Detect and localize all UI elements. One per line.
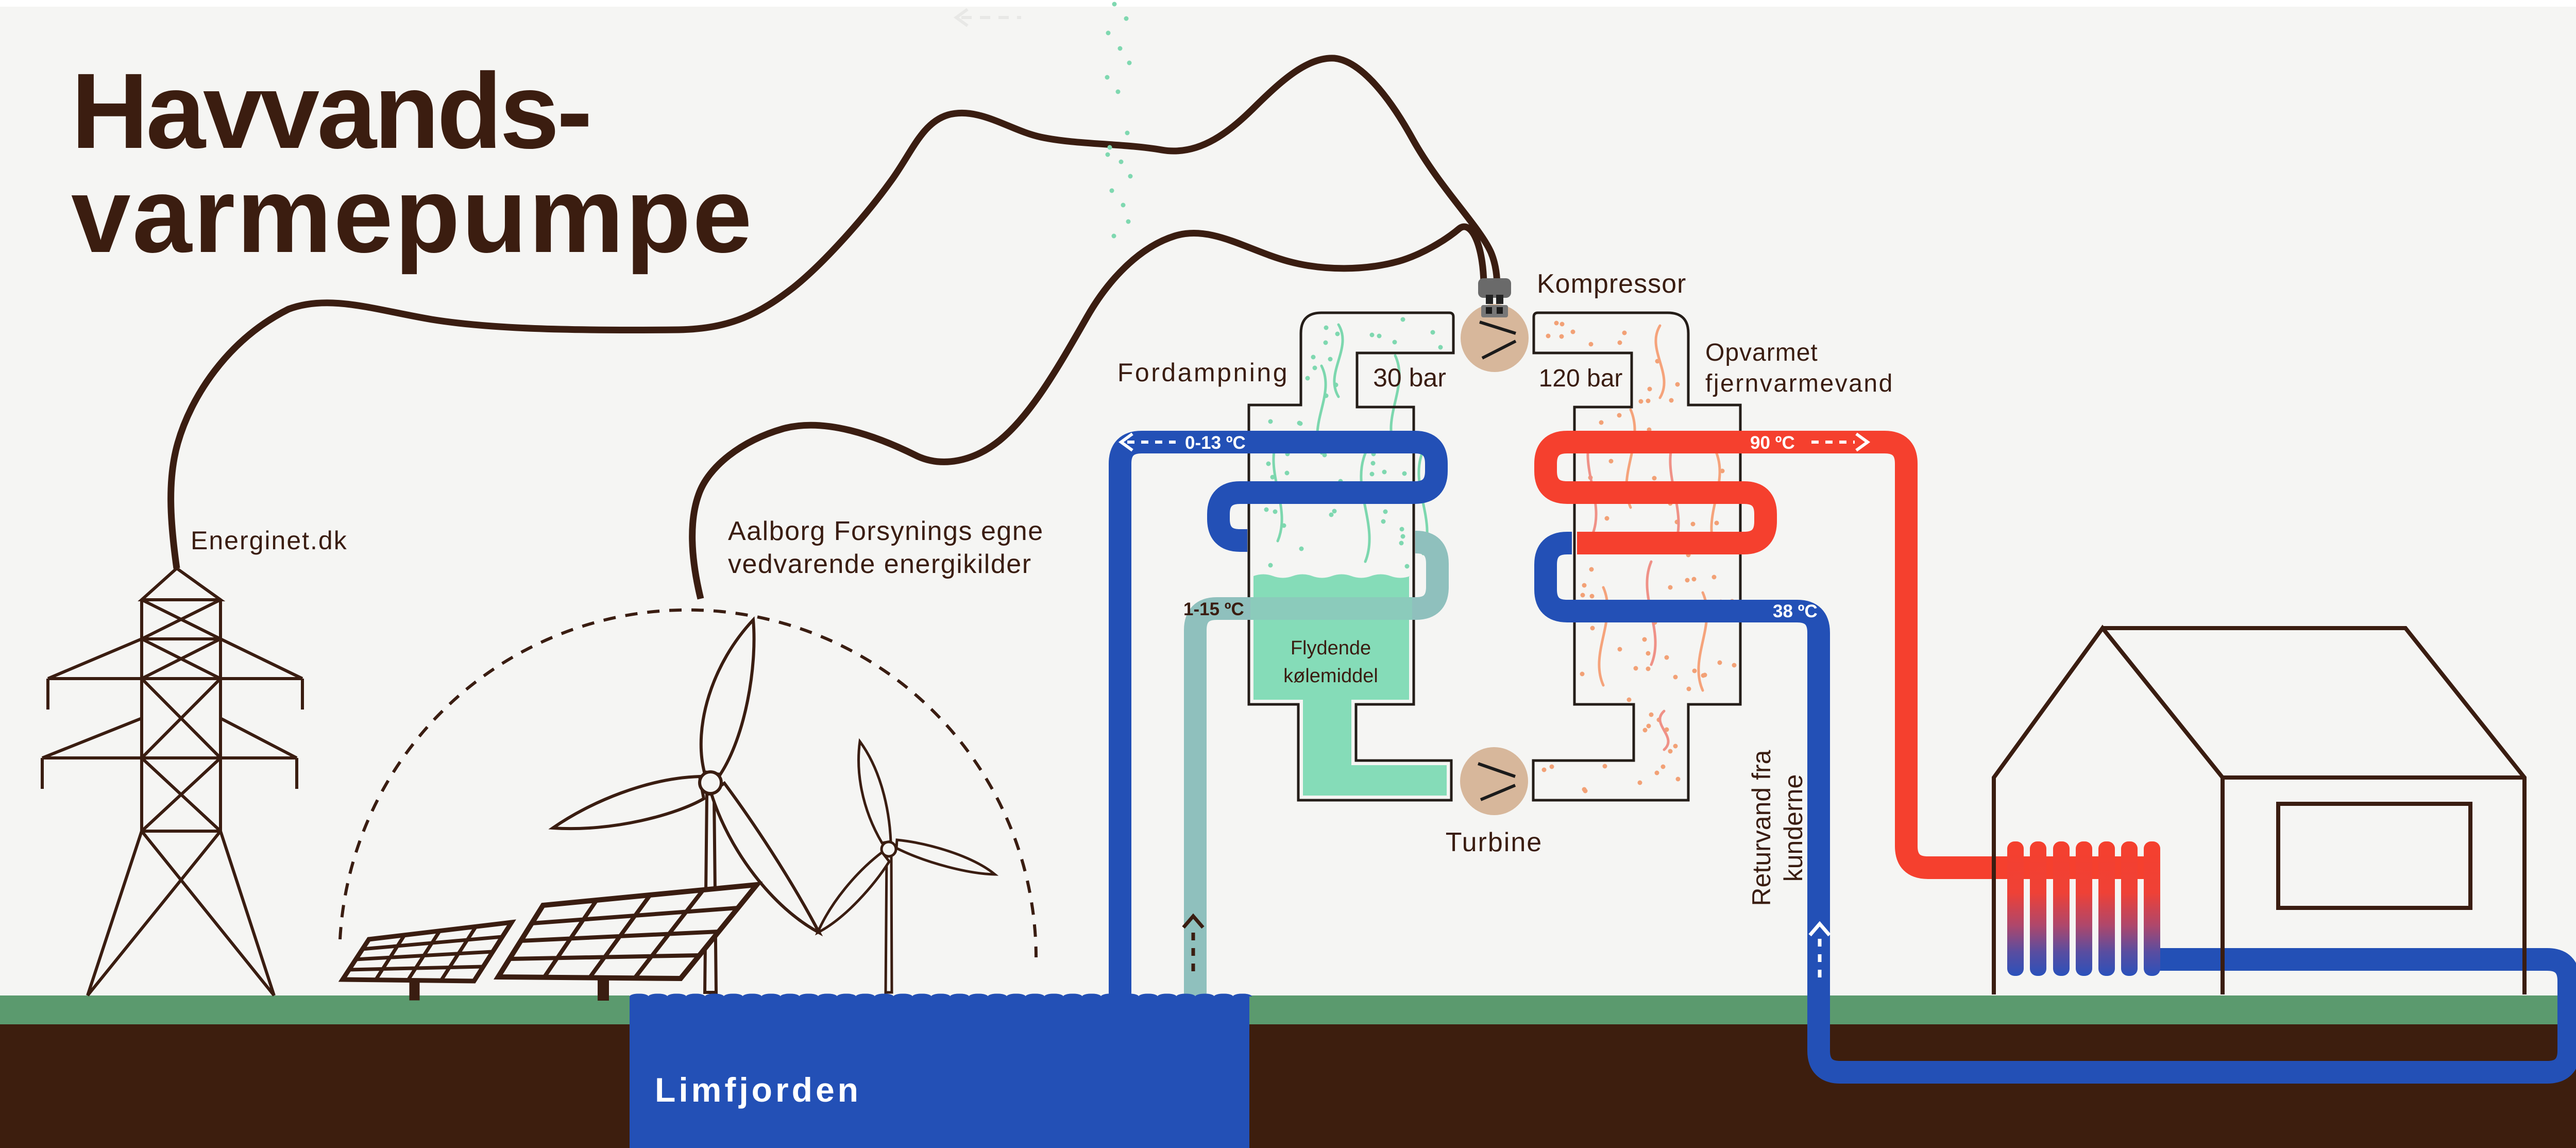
svg-text:Kompressor: Kompressor [1537,269,1686,299]
svg-text:Energinet.dk: Energinet.dk [191,526,348,555]
svg-text:Havvands-: Havvands- [71,52,590,171]
svg-text:90 ºC: 90 ºC [1750,433,1795,453]
svg-text:30 bar: 30 bar [1373,363,1446,392]
svg-text:fjernvarmevand: fjernvarmevand [1705,370,1894,397]
svg-text:varmepumpe: varmepumpe [71,156,754,275]
svg-text:vedvarende energikilder: vedvarende energikilder [728,549,1032,579]
svg-text:1-15 ºC: 1-15 ºC [1183,599,1244,619]
svg-text:Turbine: Turbine [1446,828,1543,857]
svg-text:120 bar: 120 bar [1539,365,1623,392]
svg-text:kølemiddel: kølemiddel [1283,665,1378,687]
svg-text:kunderne: kunderne [1779,774,1808,882]
svg-text:Flydende: Flydende [1291,637,1371,659]
svg-text:0-13 ºC: 0-13 ºC [1185,433,1246,453]
svg-text:Fordampning: Fordampning [1117,358,1289,387]
svg-text:38 ºC: 38 ºC [1773,601,1818,621]
svg-text:Limfjorden: Limfjorden [655,1071,861,1109]
svg-text:Opvarmet: Opvarmet [1705,339,1818,366]
svg-text:Returvand fra: Returvand fra [1747,750,1776,906]
svg-text:Aalborg Forsynings egne: Aalborg Forsynings egne [728,516,1044,546]
